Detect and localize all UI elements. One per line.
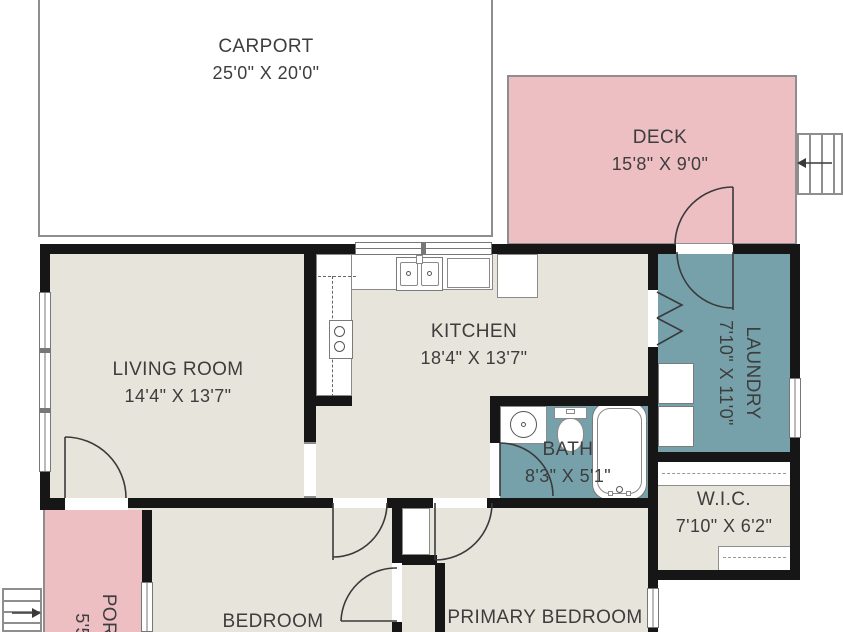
wall [392, 622, 402, 632]
room-dims: 18'4" X 13'7" [421, 345, 528, 371]
washer [658, 363, 694, 404]
wall [648, 628, 658, 632]
room-name: LAUNDRY [739, 320, 765, 426]
room-dims: 7'10" X 11'0" [713, 320, 739, 426]
window [647, 588, 659, 628]
tub-handle [608, 491, 613, 496]
stair-tread [821, 135, 823, 193]
stove-burner [334, 341, 345, 352]
wall [648, 570, 800, 580]
living-room-label: LIVING ROOM 14'4" X 13'7" [112, 357, 243, 409]
upper-cabinet-line [318, 276, 356, 277]
door-opening [65, 498, 128, 510]
tub-handle [626, 491, 631, 496]
wall [648, 244, 658, 290]
wic-closet-rod-top [658, 462, 790, 486]
stair-tread [833, 135, 835, 193]
window [39, 292, 51, 472]
room-dims: 7'10" X 6'2" [676, 513, 773, 539]
wic-label: W.I.C. 7'10" X 6'2" [676, 487, 773, 539]
window [141, 582, 153, 632]
wall [648, 347, 658, 588]
vanity-drain [521, 422, 526, 427]
toilet-flush-button [566, 409, 575, 414]
room-dims: 5'5" [69, 594, 95, 632]
door-opening [433, 498, 487, 508]
room-name: LIVING ROOM [112, 357, 243, 383]
stair-tread [4, 600, 40, 602]
room-dims: 25'0" X 20'0" [213, 60, 320, 86]
wall [490, 396, 650, 406]
room-dims: 14'4" X 13'7" [112, 383, 243, 409]
floor-plan: CARPORT 25'0" X 20'0" DECK 15'8" X 9'0" … [0, 0, 843, 632]
carport-label: CARPORT 25'0" X 20'0" [213, 34, 320, 86]
primary-bedroom-label: PRIMARY BEDROOM [447, 605, 642, 631]
sink-drain [406, 271, 411, 276]
refrigerator [497, 254, 538, 298]
wall [435, 563, 445, 632]
wall [40, 244, 50, 292]
wall [142, 510, 152, 582]
dryer [658, 406, 694, 447]
room-name: W.I.C. [676, 487, 773, 513]
porch-label: PORCH 5'5" [69, 594, 121, 632]
wall [648, 452, 800, 462]
stair-tread [4, 611, 40, 613]
wall [392, 500, 402, 563]
cased-opening [304, 442, 316, 498]
kitchen-label: KITCHEN 18'4" X 13'7" [421, 319, 528, 371]
window [789, 378, 801, 438]
stove [329, 320, 353, 359]
room-dims: 8'3" X 5'1" [525, 463, 611, 489]
room-name: DECK [612, 125, 709, 151]
linen-closet [402, 508, 430, 555]
closet-rod-line [662, 473, 786, 474]
wall [790, 244, 800, 378]
room-name: CARPORT [213, 34, 320, 60]
tub-faucet [616, 486, 623, 493]
door-opening [490, 443, 500, 498]
wall [790, 438, 800, 580]
window-mullion [421, 242, 426, 255]
closet-rod-line [723, 557, 786, 558]
wall [487, 498, 650, 508]
wall [40, 498, 65, 510]
door-opening [392, 563, 402, 622]
door-opening [333, 498, 387, 508]
wall [128, 498, 333, 508]
stove-burner [334, 326, 345, 337]
sink-faucet [416, 255, 423, 264]
wic-closet-rod-bottom [718, 546, 790, 570]
dishwasher [447, 258, 490, 288]
room-name: KITCHEN [421, 319, 528, 345]
room-name: PORCH [95, 594, 121, 632]
sink-drain [427, 271, 432, 276]
door-opening [676, 244, 733, 254]
porch-stairs [2, 588, 42, 632]
wall [304, 396, 352, 406]
wall [304, 244, 316, 442]
door-opening [648, 290, 658, 347]
laundry-label: LAUNDRY 7'10" X 11'0" [713, 320, 765, 426]
window-mullion [39, 408, 51, 413]
room-dims: 15'8" X 9'0" [612, 151, 709, 177]
window-mullion [39, 348, 51, 353]
deck-label: DECK 15'8" X 9'0" [612, 125, 709, 177]
room-name: PRIMARY BEDROOM [447, 605, 642, 631]
stair-tread [809, 135, 811, 193]
room-name: BATH [525, 437, 611, 463]
stair-tread [4, 622, 40, 624]
room-name: BEDROOM [223, 609, 324, 632]
bedroom-label: BEDROOM [223, 609, 324, 632]
deck-stairs [797, 133, 843, 195]
bath-label: BATH 8'3" X 5'1" [525, 437, 611, 489]
wall [402, 555, 437, 565]
